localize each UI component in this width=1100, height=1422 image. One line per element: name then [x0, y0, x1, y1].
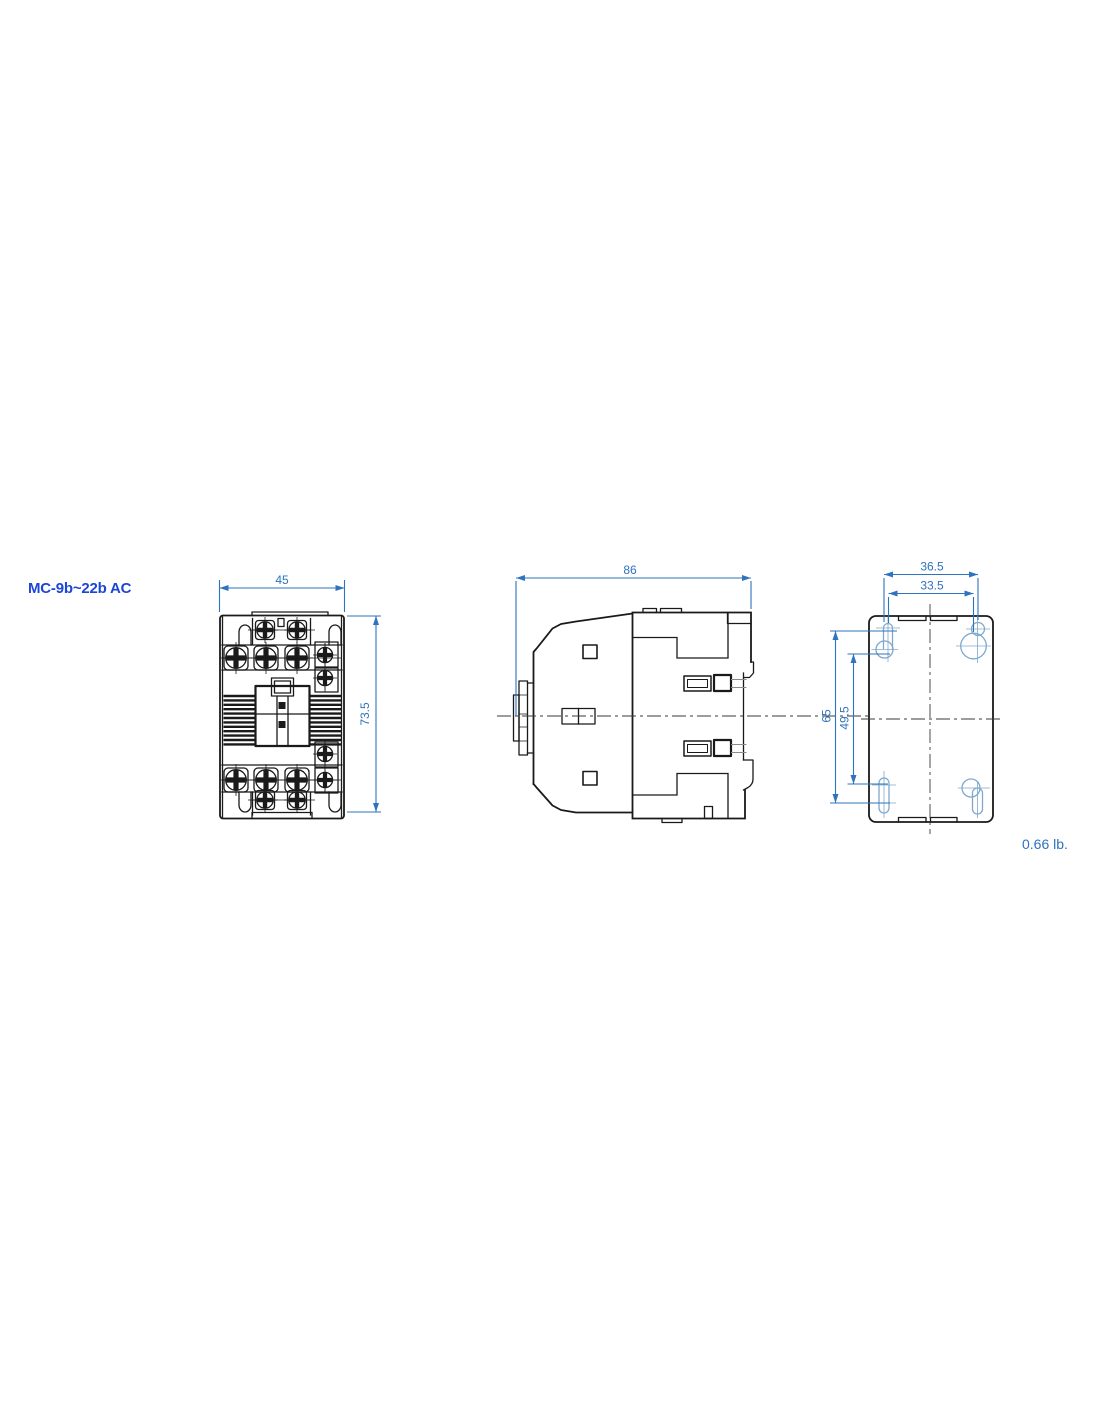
dim-mount-width-inner-group: 33.5 — [889, 579, 974, 633]
front-armature — [256, 678, 310, 746]
side-view: 86 — [497, 563, 869, 823]
dim-mount-width-outer-label: 36.5 — [920, 560, 944, 574]
dim-side-depth-group: 86 — [516, 563, 751, 716]
dim-front-height-group: 73.5 — [347, 616, 381, 812]
dim-front-height-label: 73.5 — [358, 702, 372, 726]
weight-note: 0.66 lb. — [1022, 836, 1068, 852]
front-view: 45 73.5 — [220, 573, 382, 819]
drawing-canvas: MC-9b~22b AC — [0, 0, 1100, 1422]
mounting-slot-bottom-right — [958, 779, 990, 818]
side-body-outline — [534, 614, 633, 813]
dim-mount-height-outer-label: 65 — [820, 709, 834, 723]
dim-side-depth-label: 86 — [623, 563, 637, 577]
dim-mount-height-inner-label: 49.5 — [838, 706, 852, 730]
dimension-drawing: 45 73.5 — [0, 0, 1100, 1422]
dim-front-width-group: 45 — [220, 573, 345, 612]
mounting-view: 36.5 33.5 65 49.5 — [820, 560, 1002, 835]
mounting-slot-top-left — [872, 617, 901, 662]
mounting-slot-bottom-left — [872, 771, 896, 818]
side-terminal-slots — [684, 675, 747, 756]
dim-front-width-label: 45 — [275, 573, 289, 587]
dim-mount-height-outer-group: 65 — [820, 631, 898, 803]
dim-mount-width-inner-label: 33.5 — [920, 579, 944, 593]
side-rear-block — [633, 609, 754, 823]
